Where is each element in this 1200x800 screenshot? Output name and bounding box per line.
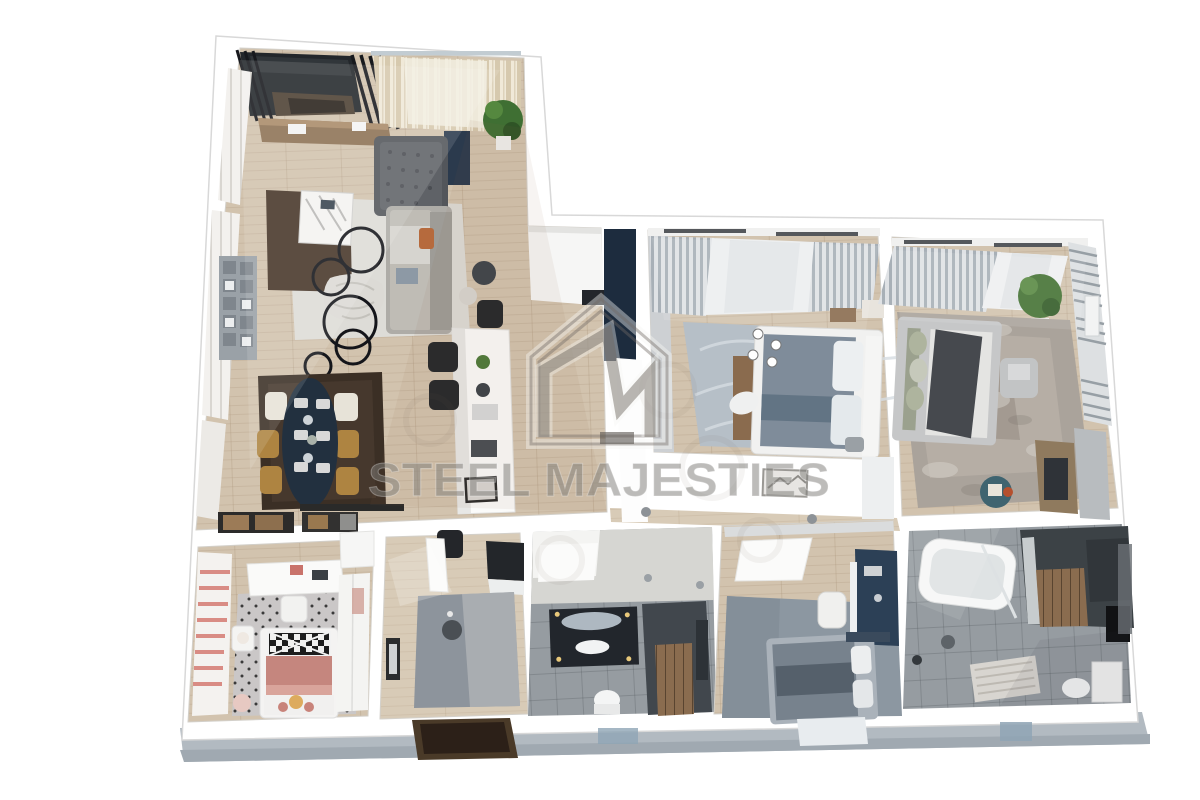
svg-text:STEEL MAJESTIES: STEEL MAJESTIES (368, 453, 830, 506)
